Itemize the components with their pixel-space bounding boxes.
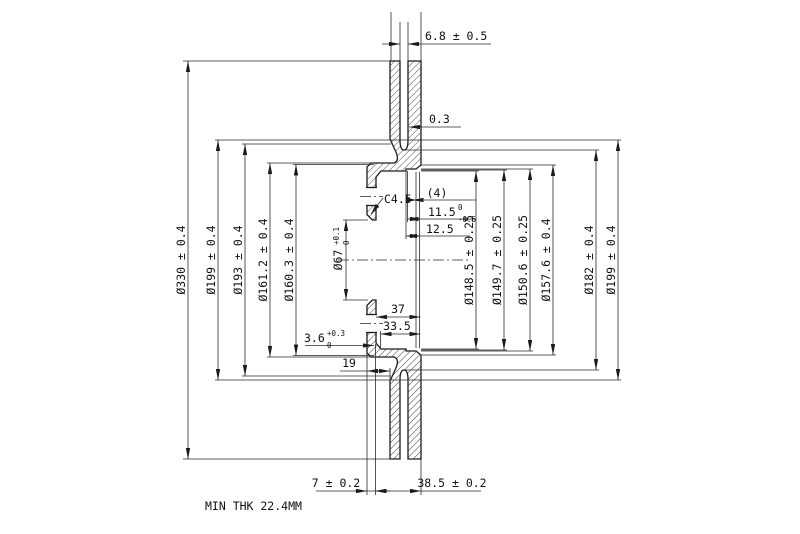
dim-flange-7: 7 ± 0.2 bbox=[312, 476, 360, 490]
dim-157-6: Ø157.6 ± 0.4 bbox=[539, 218, 553, 301]
dim-offset-0-3: 0.3 bbox=[429, 112, 450, 126]
note-min-thickness: MIN THK 22.4MM bbox=[205, 499, 302, 513]
dim-149-7: Ø149.7 ± 0.25 bbox=[490, 215, 504, 305]
dim-161-2: Ø161.2 ± 0.4 bbox=[256, 218, 270, 301]
dim-bore-67-tol-upper: +0.1 bbox=[332, 227, 341, 245]
ref-count-label: (4) bbox=[427, 186, 448, 200]
dim-193: Ø193 ± 0.4 bbox=[231, 225, 245, 294]
dim-bore-67: Ø67 +0.1 0 bbox=[331, 227, 351, 270]
dim-depth-33-5: 33.5 bbox=[383, 319, 411, 333]
dim-bore-67-tol-lower: 0 bbox=[342, 240, 351, 245]
dim-step-3-6-tol-lower: 0 bbox=[327, 341, 332, 350]
dim-182: Ø182 ± 0.4 bbox=[582, 225, 596, 294]
dim-height-38-5: 38.5 ± 0.2 bbox=[417, 476, 486, 490]
dim-vane-6-8: 6.8 ± 0.5 bbox=[425, 29, 487, 43]
dim-od-330: Ø330 ± 0.4 bbox=[174, 225, 188, 294]
dim-199-right: Ø199 ± 0.4 bbox=[604, 225, 618, 294]
brake-rotor-section-drawing: Ø330 ± 0.4 Ø199 ± 0.4 Ø193 ± 0.4 Ø161.2 … bbox=[0, 0, 800, 534]
dim-step-3-6: 3.6 bbox=[304, 331, 325, 345]
dim-depth-11-5-tol-lower: -0.5 bbox=[458, 215, 476, 224]
dim-depth-37: 37 bbox=[391, 302, 405, 316]
dim-depth-11-5: 11.5 bbox=[428, 205, 456, 219]
chamfer-label: C4.5 bbox=[384, 192, 412, 206]
dim-199-left: Ø199 ± 0.4 bbox=[204, 225, 218, 294]
dim-depth-11-5-tol-upper: 0 bbox=[458, 203, 463, 212]
svg-text:Ø67: Ø67 bbox=[331, 250, 345, 271]
dim-drum-148-5: Ø148.5 ± 0.25 bbox=[462, 215, 476, 305]
dim-step-3-6-tol-upper: +0.3 bbox=[327, 329, 345, 338]
dim-depth-12-5: 12.5 bbox=[426, 222, 454, 236]
extension-lines bbox=[183, 12, 621, 495]
dim-150-6: Ø150.6 ± 0.25 bbox=[516, 215, 530, 305]
engineering-drawing-canvas: Ø330 ± 0.4 Ø199 ± 0.4 Ø193 ± 0.4 Ø161.2 … bbox=[0, 0, 800, 534]
dimension-lines bbox=[188, 44, 618, 491]
dim-160-3: Ø160.3 ± 0.4 bbox=[282, 218, 296, 301]
dim-offset-19: 19 bbox=[342, 356, 356, 370]
